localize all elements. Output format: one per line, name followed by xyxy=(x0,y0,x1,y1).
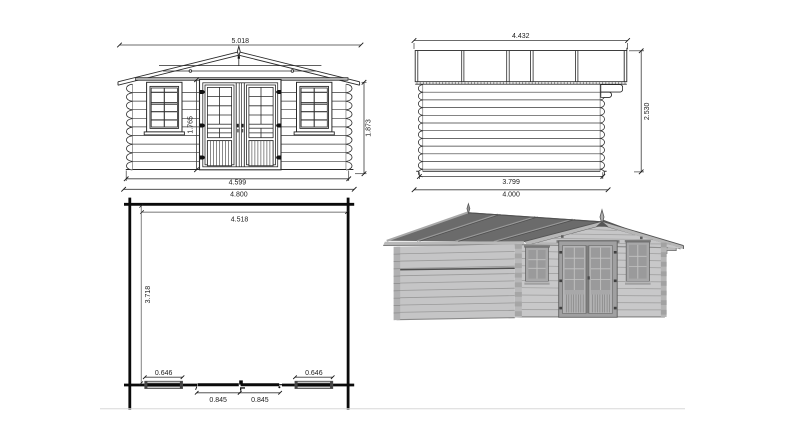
svg-text:0.646: 0.646 xyxy=(305,370,323,377)
svg-text:4.599: 4.599 xyxy=(229,180,247,187)
svg-text:4.800: 4.800 xyxy=(230,191,248,198)
svg-text:0.646: 0.646 xyxy=(155,370,173,377)
svg-text:4.518: 4.518 xyxy=(231,217,249,224)
svg-text:0.845: 0.845 xyxy=(209,397,227,404)
svg-text:4.000: 4.000 xyxy=(502,192,520,199)
svg-text:0.845: 0.845 xyxy=(251,397,269,404)
svg-text:4.432: 4.432 xyxy=(512,33,530,40)
svg-text:3.718: 3.718 xyxy=(145,286,152,304)
svg-text:1.873: 1.873 xyxy=(366,119,373,137)
svg-text:3.799: 3.799 xyxy=(502,179,520,186)
svg-text:2.530: 2.530 xyxy=(644,102,651,120)
svg-text:5.018: 5.018 xyxy=(231,38,249,45)
svg-text:1.765: 1.765 xyxy=(187,116,194,134)
